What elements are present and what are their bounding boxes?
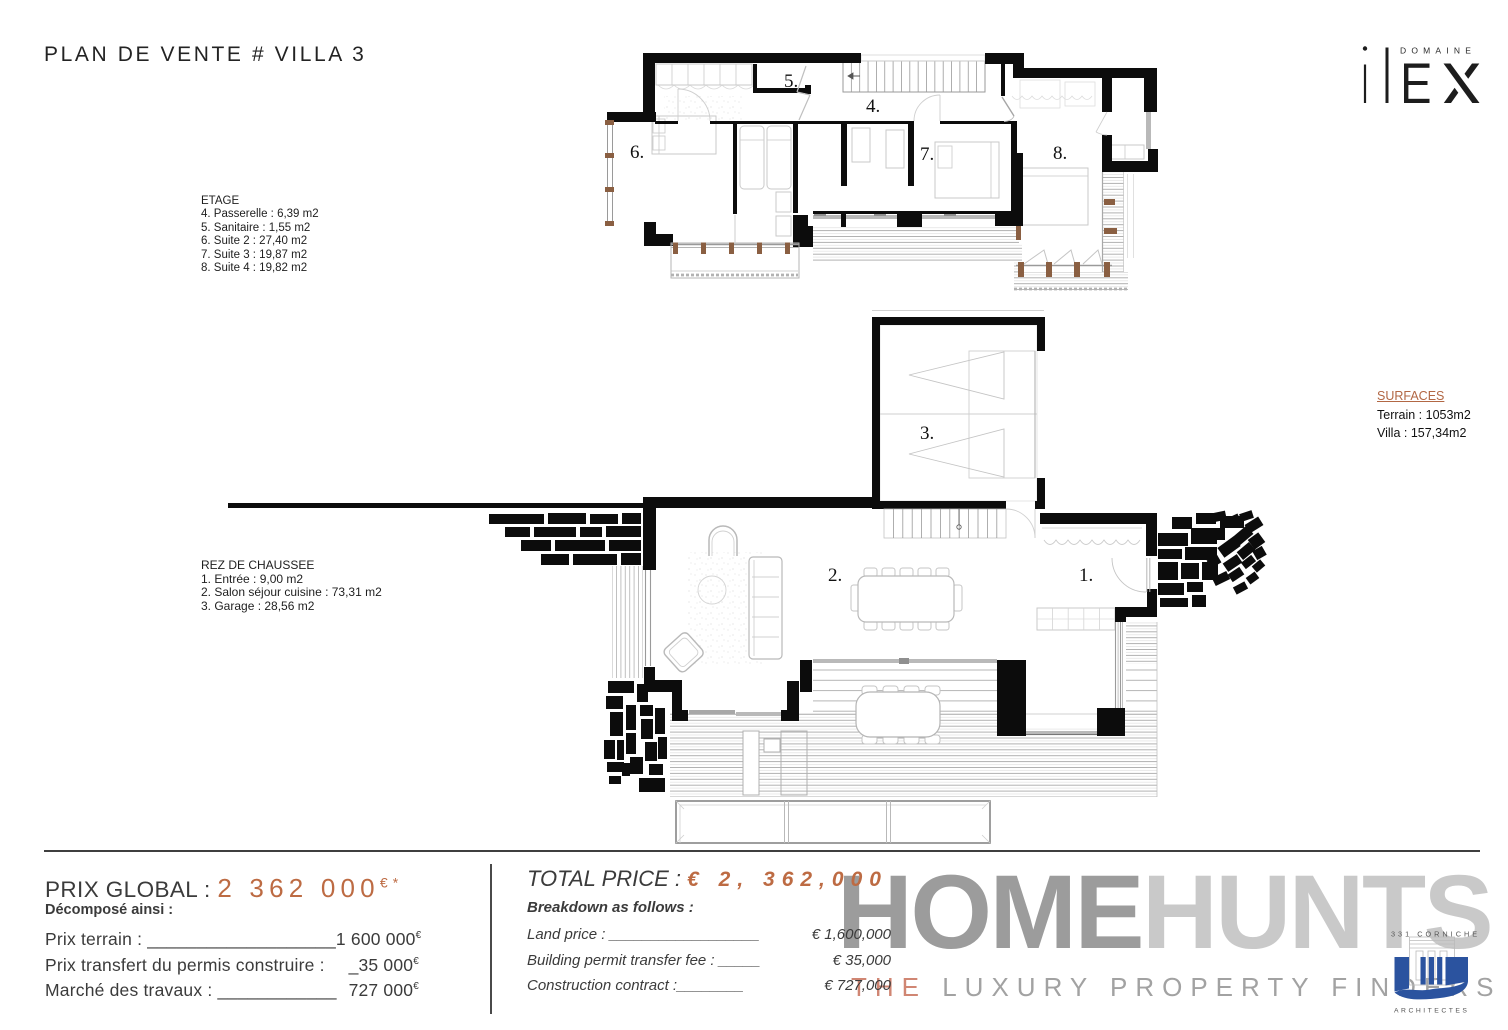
- svg-text:2.: 2.: [828, 565, 842, 586]
- svg-text:8.: 8.: [1053, 143, 1067, 164]
- svg-text:ARCHITECTES: ARCHITECTES: [1394, 1008, 1469, 1015]
- svg-text:6.: 6.: [630, 142, 644, 163]
- svg-text:DOMAINE: DOMAINE: [1400, 46, 1476, 56]
- svg-text:3.: 3.: [920, 423, 934, 444]
- svg-text:1.: 1.: [1079, 565, 1093, 586]
- svg-text:7.: 7.: [920, 144, 934, 165]
- svg-text:4.: 4.: [866, 96, 880, 117]
- svg-text:5.: 5.: [784, 71, 798, 92]
